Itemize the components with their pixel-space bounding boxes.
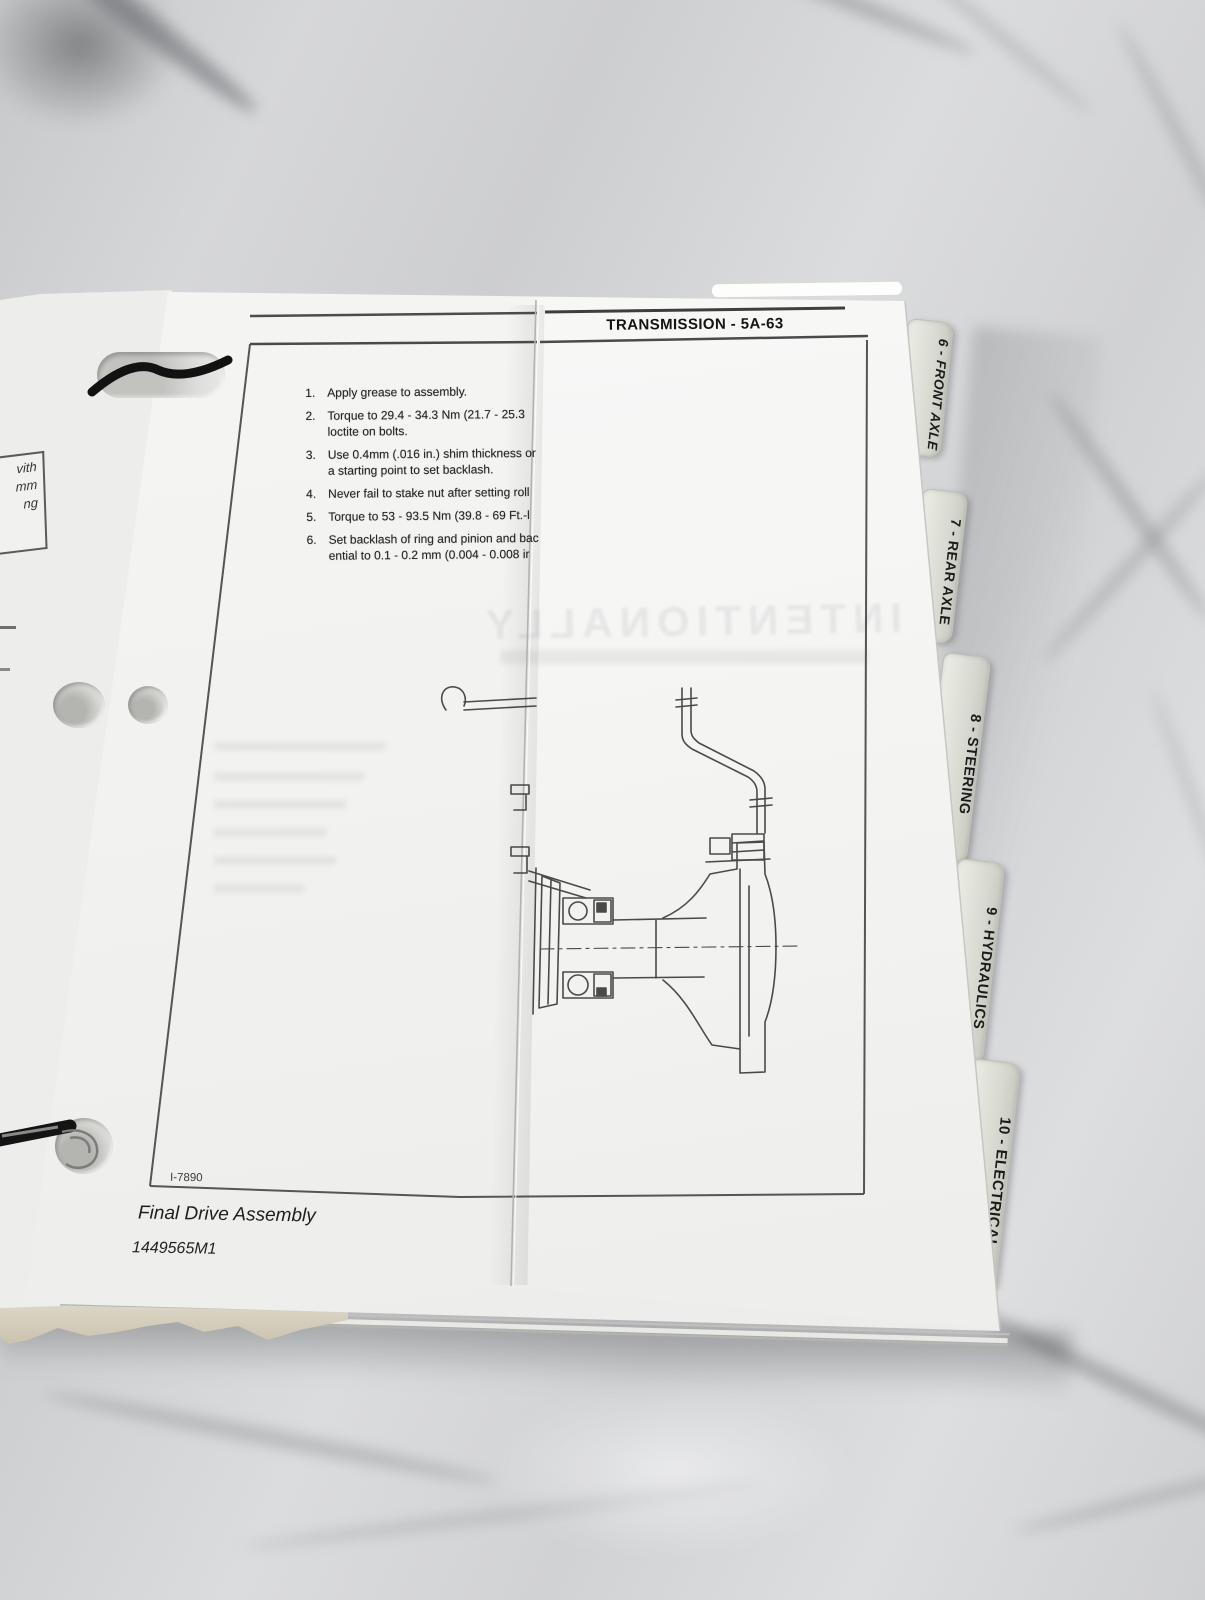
figure-caption: Final Drive Assembly — [138, 1202, 316, 1227]
left-page-text-fragment: vith mm ng — [0, 451, 48, 559]
page-header-title: TRANSMISSION - 5A-63 — [562, 315, 828, 334]
item-number: 6. — [296, 532, 316, 564]
marble-vein — [1114, 21, 1205, 292]
item-text: Torque to 29.4 - 34.3 Nm (21.7 - 25.3 — [327, 406, 525, 424]
bleed-through-smudge — [214, 800, 346, 809]
punch-hole — [97, 352, 225, 398]
instruction-item: 6. Set backlash of ring and pinion and b… — [296, 530, 538, 564]
item-text: loctite on bolts. — [328, 422, 526, 440]
part-number: 1449565M1 — [132, 1239, 217, 1258]
punch-hole — [53, 682, 105, 728]
item-text: Use 0.4mm (.016 in.) shim thickness or — [328, 445, 536, 463]
marble-vein — [0, 0, 220, 160]
bleed-through-text: INTENTIONALLY — [428, 594, 903, 650]
punch-hole — [55, 1118, 113, 1174]
item-text: Torque to 53 - 93.5 Nm (39.8 - 69 Ft.-l — [328, 507, 530, 525]
item-text: ential to 0.1 - 0.2 mm (0.004 - 0.008 ir — [329, 546, 539, 564]
instruction-list: 1. Apply grease to assembly. 2. Torque t… — [295, 383, 539, 571]
item-number: 5. — [296, 509, 316, 525]
bleed-through-smudge — [500, 650, 869, 664]
bleed-through-smudge — [214, 828, 326, 837]
fragment-line: ng — [0, 494, 38, 521]
instruction-item: 2. Torque to 29.4 - 34.3 Nm (21.7 - 25.3… — [295, 406, 537, 440]
instruction-item: 4. Never fail to stake nut after setting… — [296, 484, 538, 502]
item-number: 2. — [295, 408, 315, 440]
marble-vein — [241, 1478, 758, 1552]
left-page-line-fragment — [0, 668, 10, 671]
bleed-through-smudge — [214, 772, 364, 781]
bleed-through-smudge — [214, 742, 386, 751]
item-number: 4. — [296, 486, 316, 502]
item-text: a starting point to set backlash. — [328, 461, 536, 479]
item-number: 3. — [296, 447, 316, 479]
marble-vein — [43, 1386, 497, 1488]
punch-hole — [128, 686, 168, 724]
left-page-line-fragment — [0, 626, 16, 629]
marble-countertop-photo: 6 - FRONT AXLE 7 - REAR AXLE 8 - STEERIN… — [0, 0, 1205, 1600]
item-text: Apply grease to assembly. — [327, 384, 467, 401]
instruction-item: 3. Use 0.4mm (.016 in.) shim thickness o… — [296, 445, 538, 479]
marble-vein — [1148, 686, 1205, 924]
instruction-item: 1. Apply grease to assembly. — [295, 383, 537, 401]
instruction-item: 5. Torque to 53 - 93.5 Nm (39.8 - 69 Ft.… — [296, 507, 538, 525]
bleed-through-smudge — [214, 856, 336, 865]
item-text: Set backlash of ring and pinion and bacl — [328, 530, 538, 548]
bleed-through-smudge — [214, 884, 304, 893]
item-text: Never fail to stake nut after setting ro… — [328, 484, 530, 502]
figure-ref: I-7890 — [170, 1172, 203, 1185]
marble-vein — [1013, 1454, 1205, 1537]
page-curl-highlight — [712, 282, 902, 298]
item-number: 1. — [295, 385, 315, 401]
marble-vein — [904, 0, 1096, 118]
marble-vein — [0, 0, 264, 122]
marble-vein — [602, 0, 979, 60]
